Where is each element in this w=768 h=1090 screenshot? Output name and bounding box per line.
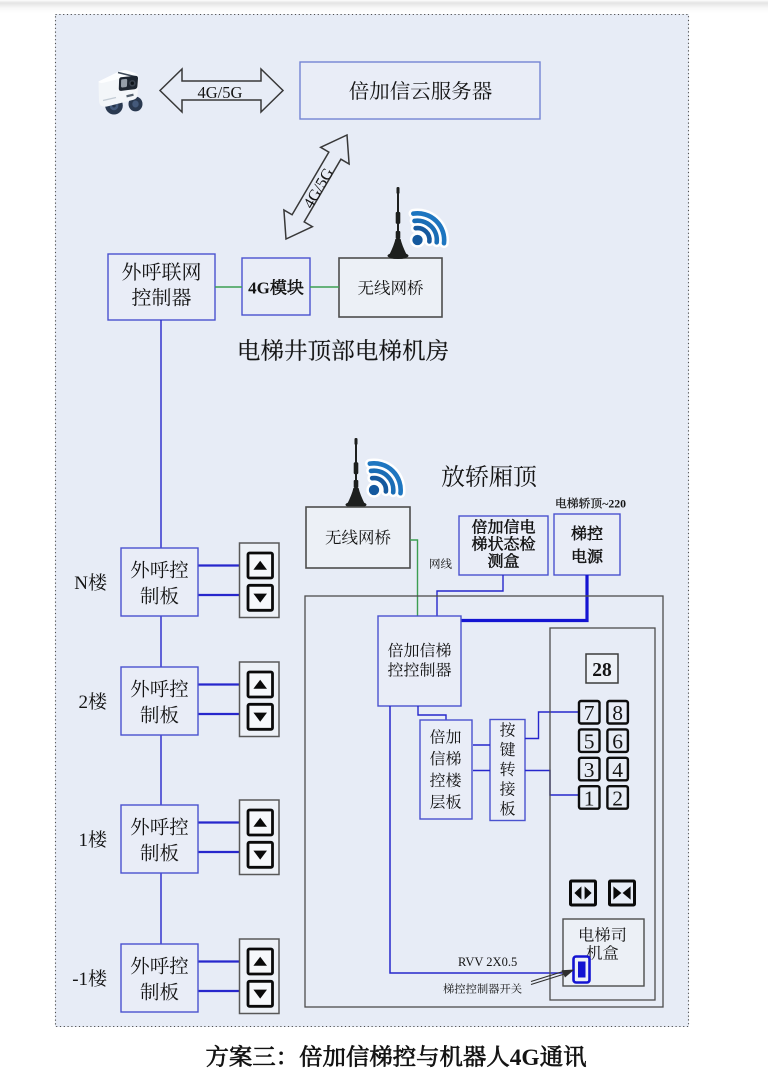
svg-text:4G/5G: 4G/5G [301,165,338,212]
svg-text:8: 8 [612,701,623,725]
svg-text:1: 1 [79,830,89,851]
svg-text:4: 4 [612,758,623,782]
svg-text:2: 2 [612,786,623,810]
svg-text:4G/5G: 4G/5G [198,83,243,102]
svg-text:4G: 4G [510,1045,540,1071]
svg-text:N: N [74,573,88,594]
svg-text:1: 1 [584,786,595,810]
svg-text:4G: 4G [248,279,270,298]
svg-text:2: 2 [79,692,89,713]
svg-text:7: 7 [584,701,595,725]
svg-text:-1: -1 [72,969,88,990]
svg-text:RVV 2X0.5: RVV 2X0.5 [458,955,517,969]
svg-text:28: 28 [592,660,612,681]
svg-text:~220: ~220 [602,497,626,511]
svg-text:6: 6 [612,730,623,754]
svg-text:5: 5 [584,730,595,754]
svg-text:3: 3 [584,758,595,782]
